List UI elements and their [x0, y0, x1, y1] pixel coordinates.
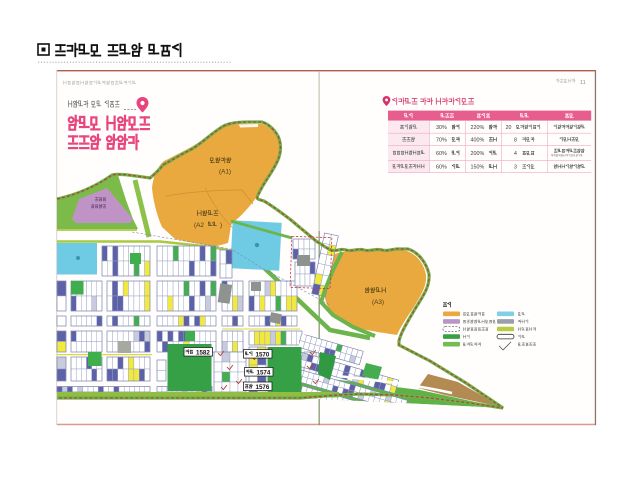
- svg-text:3: 3: [514, 164, 517, 170]
- svg-text:70%: 70%: [436, 137, 447, 143]
- svg-text:200%: 200%: [471, 151, 485, 157]
- svg-text:1582: 1582: [196, 350, 210, 357]
- svg-text:1570: 1570: [256, 352, 270, 359]
- svg-text:): ): [220, 222, 222, 229]
- svg-text:220%: 220%: [471, 125, 485, 131]
- svg-text:400%: 400%: [471, 137, 485, 143]
- svg-text:8: 8: [514, 137, 517, 143]
- svg-text:(A3): (A3): [372, 299, 384, 306]
- svg-text:60%: 60%: [436, 164, 447, 170]
- svg-text:(A1): (A1): [219, 169, 231, 176]
- svg-text:11: 11: [580, 80, 586, 86]
- svg-text:150%: 150%: [471, 164, 485, 170]
- svg-text:1576: 1576: [256, 384, 270, 391]
- svg-text:4: 4: [514, 151, 517, 157]
- svg-text:(A2: (A2: [194, 222, 204, 229]
- svg-text:60%: 60%: [436, 151, 447, 157]
- svg-text:20: 20: [506, 125, 512, 131]
- svg-text:30%: 30%: [436, 125, 447, 131]
- svg-text:1574: 1574: [257, 370, 271, 377]
